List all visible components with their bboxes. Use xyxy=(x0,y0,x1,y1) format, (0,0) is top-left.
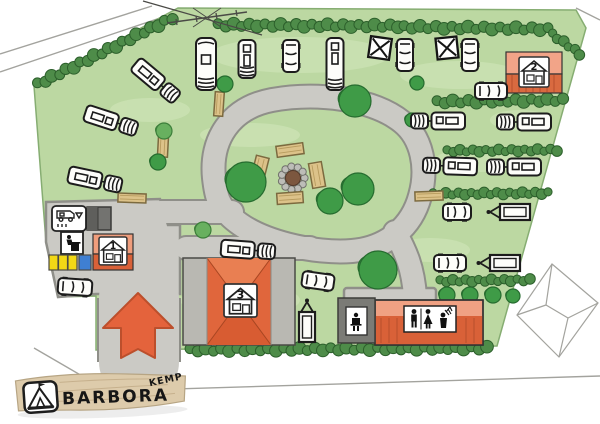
container-yellow xyxy=(59,255,68,270)
tree-icon xyxy=(358,251,397,289)
caravan-icon xyxy=(239,40,256,78)
building-number: 2 xyxy=(531,62,538,73)
utility-building xyxy=(338,298,375,343)
waste-disposal-sign xyxy=(61,232,83,254)
tree-icon xyxy=(195,222,211,238)
picnic-bench xyxy=(415,191,443,201)
campground-map: 1 2 3 xyxy=(0,0,600,424)
tree-icon xyxy=(316,188,343,214)
picnic-bench xyxy=(214,92,225,117)
building-3-main-house: 3 xyxy=(183,258,295,345)
building-number: 3 xyxy=(237,288,245,301)
tree-icon xyxy=(225,162,266,202)
combo-icon xyxy=(487,159,541,176)
car-icon xyxy=(475,82,507,101)
tree-icon xyxy=(341,173,374,205)
car-icon xyxy=(395,39,414,71)
car-icon xyxy=(57,276,92,298)
tree-icon xyxy=(338,85,371,117)
building-number: 1 xyxy=(110,241,116,252)
tree-icon xyxy=(156,123,172,139)
camper-service-sign xyxy=(52,206,86,231)
container-yellow xyxy=(68,255,77,270)
picnic-bench xyxy=(118,193,146,203)
sanitary-building xyxy=(375,300,483,345)
map-canvas: 1 2 3 xyxy=(0,0,600,424)
combo-icon xyxy=(423,157,478,176)
tree-icon xyxy=(217,76,233,92)
tree-icon xyxy=(485,287,501,303)
tent-pitch-icon xyxy=(368,36,392,60)
logo-plank: BARBORA KEMP xyxy=(15,370,187,420)
picnic-bench xyxy=(277,192,304,205)
car-icon xyxy=(434,254,466,273)
combo-icon xyxy=(411,113,465,130)
tent-logo-icon xyxy=(23,381,58,413)
tent-pitch-icon xyxy=(435,36,458,59)
combo-icon xyxy=(497,114,551,131)
car-icon xyxy=(460,39,479,71)
logo-text: BARBORA xyxy=(62,386,170,410)
caravan-icon xyxy=(327,38,344,90)
storage-shed xyxy=(87,207,111,230)
container-blue xyxy=(79,255,91,270)
tree-icon xyxy=(150,154,166,170)
recycling-containers xyxy=(49,255,91,270)
tree-icon xyxy=(410,76,424,90)
container-yellow xyxy=(49,255,58,270)
car-icon xyxy=(443,203,471,222)
building-1-reception: 1 xyxy=(93,234,133,270)
motorhome-icon xyxy=(196,38,216,90)
wc-shower-sign xyxy=(404,306,456,332)
building-2-cabin: 2 xyxy=(506,52,562,93)
tree-icon xyxy=(506,289,520,303)
car-icon xyxy=(281,40,300,72)
